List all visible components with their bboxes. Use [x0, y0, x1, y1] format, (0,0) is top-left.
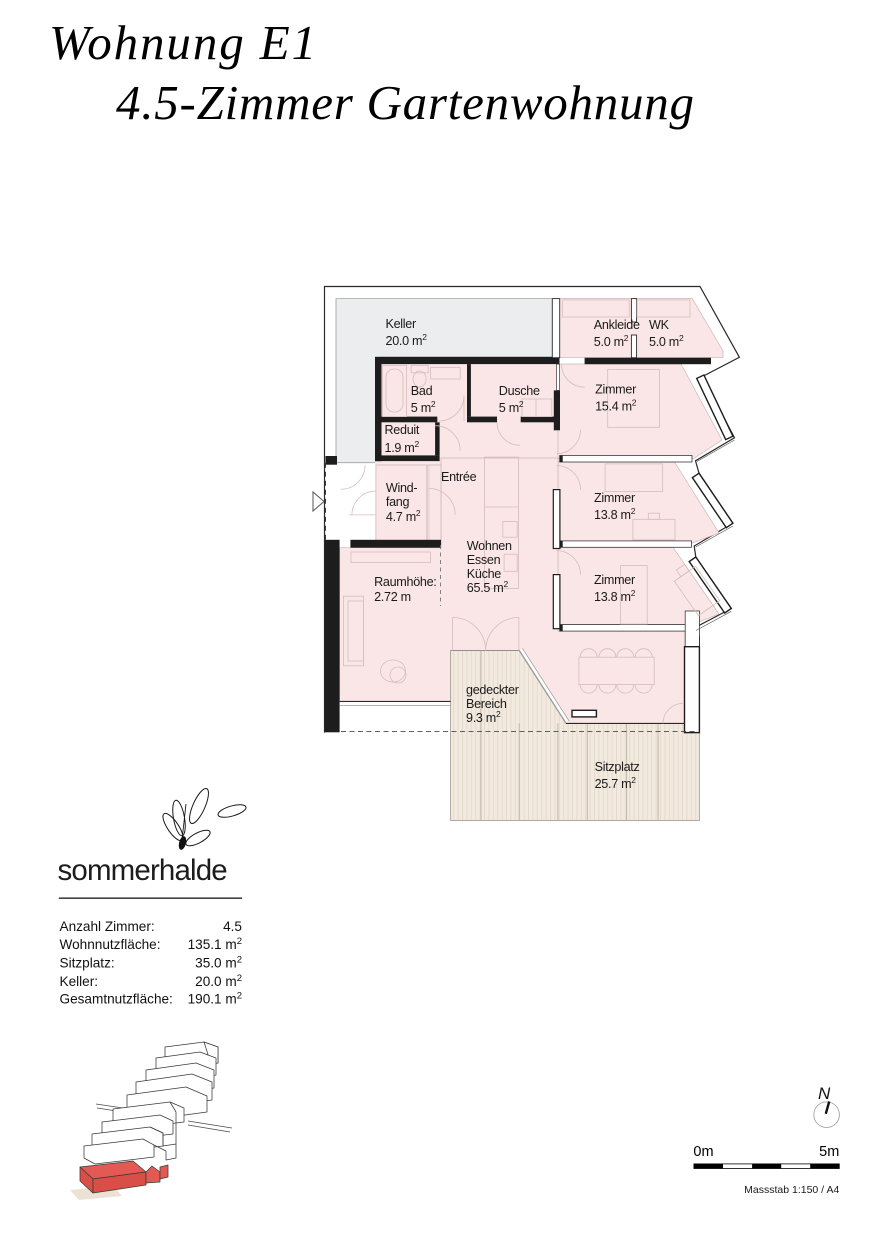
svg-text:Raumhöhe:: Raumhöhe: [374, 575, 436, 589]
svg-text:Essen: Essen [467, 553, 501, 567]
svg-text:sommerhalde: sommerhalde [58, 854, 228, 887]
svg-text:Zimmer: Zimmer [594, 491, 635, 505]
svg-text:fang: fang [386, 495, 410, 509]
svg-text:Dusche: Dusche [499, 384, 540, 398]
svg-text:gedeckter: gedeckter [466, 683, 519, 697]
svg-text:20.0 m2: 20.0 m2 [386, 332, 428, 348]
svg-text:4.7 m2: 4.7 m2 [386, 508, 421, 524]
svg-text:Zimmer: Zimmer [595, 383, 636, 397]
svg-text:WK: WK [649, 318, 670, 332]
svg-text:Wohnung E1: Wohnung E1 [49, 15, 318, 70]
svg-text:4.5: 4.5 [223, 919, 242, 934]
svg-text:0m: 0m [693, 1144, 713, 1160]
svg-text:5.0 m2: 5.0 m2 [649, 333, 684, 349]
svg-text:4.5-Zimmer Gartenwohnung: 4.5-Zimmer Gartenwohnung [116, 75, 695, 130]
svg-text:N: N [818, 1084, 831, 1103]
svg-text:Gesamtnutzfläche:: Gesamtnutzfläche: [60, 992, 173, 1007]
svg-text:Wind-: Wind- [386, 481, 417, 495]
svg-text:13.8 m2: 13.8 m2 [594, 588, 636, 604]
svg-text:Entrée: Entrée [441, 470, 477, 484]
svg-text:35.0 m2: 35.0 m2 [195, 955, 242, 971]
svg-text:Sitzplatz: Sitzplatz [595, 760, 640, 774]
svg-text:Zimmer: Zimmer [594, 573, 635, 587]
svg-text:9.3 m2: 9.3 m2 [466, 709, 501, 725]
svg-text:Bereich: Bereich [466, 697, 507, 711]
svg-text:Keller:: Keller: [60, 974, 99, 989]
svg-text:15.4 m2: 15.4 m2 [595, 398, 637, 414]
svg-text:Ankleide: Ankleide [594, 318, 640, 332]
svg-text:13.8 m2: 13.8 m2 [594, 506, 636, 522]
svg-text:Wohnnutzfläche:: Wohnnutzfläche: [60, 937, 161, 952]
svg-text:5m: 5m [819, 1144, 839, 1160]
svg-text:20.0 m2: 20.0 m2 [195, 973, 242, 989]
svg-text:2.72 m: 2.72 m [374, 590, 411, 604]
svg-text:190.1 m2: 190.1 m2 [188, 991, 242, 1007]
svg-text:Küche: Küche [467, 567, 502, 581]
svg-text:65.5 m2: 65.5 m2 [467, 579, 509, 595]
svg-text:25.7 m2: 25.7 m2 [595, 775, 637, 791]
svg-text:Sitzplatz:: Sitzplatz: [60, 956, 115, 971]
svg-text:Keller: Keller [386, 317, 417, 331]
svg-text:1.9 m2: 1.9 m2 [385, 439, 420, 455]
svg-text:5.0 m2: 5.0 m2 [594, 333, 629, 349]
svg-text:135.1 m2: 135.1 m2 [188, 936, 242, 952]
svg-text:Reduit: Reduit [385, 423, 420, 437]
svg-text:Massstab 1:150 / A4: Massstab 1:150 / A4 [744, 1184, 839, 1196]
svg-text:Anzahl Zimmer:: Anzahl Zimmer: [60, 919, 155, 934]
svg-text:Bad: Bad [411, 384, 433, 398]
svg-text:Wohnen: Wohnen [467, 539, 512, 553]
